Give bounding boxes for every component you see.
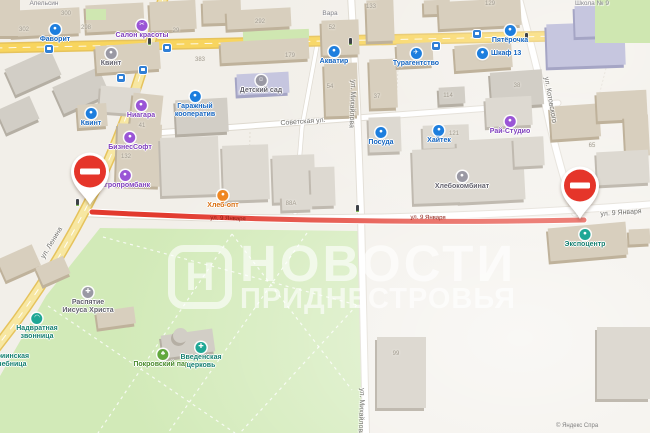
bank-icon: ● (120, 170, 131, 181)
building-number: 129 (485, 1, 495, 7)
building-number: 302 (19, 27, 29, 33)
bakery-icon: ● (217, 190, 228, 201)
poi-label: Салон красоты (116, 32, 169, 40)
poi-надвратная[interactable]: ◠Надвратнаязвонница (16, 313, 58, 340)
poi-label: Мариинскаялечебница (0, 353, 29, 368)
poi-фаворит[interactable]: ●Фаворит (40, 24, 70, 44)
expo-icon: ● (579, 229, 590, 240)
poi-label: Введенскаяцерковь (180, 354, 221, 369)
scissors-icon: ✂ (136, 20, 147, 31)
airplane-icon: ✈ (410, 48, 421, 59)
poi-турагентство[interactable]: ✈Турагентство (393, 48, 439, 68)
cart-icon: ● (433, 125, 444, 136)
poi-label: РаспятиеИисуса Христа (62, 299, 113, 314)
poi-label: Экспоцентр (565, 241, 606, 249)
building-number: 88А (286, 201, 297, 207)
poi-рай-студио[interactable]: ●Рай-Студио (490, 116, 531, 136)
building-number: 114 (443, 93, 453, 99)
building (160, 136, 220, 196)
map-canvas[interactable]: 302300298293834113229217952541333788А129… (0, 0, 650, 433)
poi-label: Шкаф 13 (491, 50, 521, 58)
poi-бизнессофт[interactable]: ●БизнесСофт (108, 132, 152, 152)
grocery-icon: ● (505, 25, 516, 36)
poi-шкаф 13[interactable]: ●Шкаф 13 (477, 48, 521, 59)
building-number: 298 (81, 25, 91, 31)
place-label: Апельсин (30, 0, 59, 7)
building-number: 179 (285, 53, 295, 59)
bus-stop-icon[interactable] (139, 66, 147, 74)
no-entry-sign-icon (557, 165, 603, 221)
traffic-light-icon (356, 205, 359, 212)
green-area (86, 9, 106, 20)
building (310, 167, 335, 207)
poi-label: Хлеб-опт (207, 202, 238, 210)
poi-label: Фаворит (40, 36, 70, 44)
poi-введенская[interactable]: ✚Введенскаяцерковь (180, 342, 221, 369)
bus-stop-icon[interactable] (473, 30, 481, 38)
store-icon: ● (50, 24, 61, 35)
poi-хайтек[interactable]: ●Хайтек (427, 125, 451, 145)
building (513, 136, 544, 167)
store-icon: ● (375, 127, 386, 138)
poi-label: Рай-Студио (490, 128, 531, 136)
traffic-light-icon (349, 38, 352, 45)
building-number: 300 (61, 11, 71, 17)
store-icon: ● (85, 108, 96, 119)
place-label: Вара (322, 10, 337, 17)
office-icon: ● (125, 132, 136, 143)
poi-квинт[interactable]: ●Квинт (101, 48, 122, 68)
factory-icon: ● (105, 48, 116, 59)
poi-label: Гаражныйкооператив (175, 103, 215, 118)
place-label: Школа № 9 (575, 0, 609, 7)
poi-label: Ниагара (127, 112, 155, 120)
building (597, 327, 650, 399)
church-cross-icon: ✚ (195, 342, 206, 353)
building (596, 150, 650, 186)
poi-мариинская[interactable]: Мариинскаялечебница (0, 352, 29, 368)
building-number: 38 (514, 83, 521, 89)
furniture-icon: ● (477, 48, 488, 59)
poi-label: Пятёрочка (492, 37, 528, 45)
building-number: 99 (393, 351, 400, 357)
building-number: 133 (366, 4, 376, 10)
poi-детский сад[interactable]: ☺Детский сад (240, 75, 282, 95)
no-entry-pin[interactable] (557, 165, 603, 226)
tree-icon: ♣ (158, 349, 169, 360)
poi-label: Надвратнаязвонница (16, 325, 58, 340)
poi-посуда[interactable]: ●Посуда (368, 127, 393, 147)
poi-распятие[interactable]: ✚РаспятиеИисуса Христа (62, 287, 113, 314)
building (0, 0, 20, 36)
building-number: 383 (195, 57, 205, 63)
street-label: ул. 9 Января (210, 215, 246, 222)
bus-stop-icon[interactable] (163, 44, 171, 52)
poi-label: Хайтек (427, 137, 451, 145)
building-number: 52 (329, 25, 336, 31)
building-number: 292 (255, 19, 265, 25)
map-attribution[interactable]: © Яндекс Спра (556, 423, 598, 429)
poi-label: Посуда (368, 139, 393, 147)
bell-icon: ◠ (32, 313, 43, 324)
building (377, 337, 426, 408)
smiley-icon: ☺ (255, 75, 266, 86)
poi-label: Акватир (320, 58, 349, 66)
poi-пятёрочка[interactable]: ●Пятёрочка (492, 25, 528, 45)
bus-stop-icon[interactable] (117, 74, 125, 82)
garage-icon: ● (189, 91, 200, 102)
poi-салон красоты[interactable]: ✂Салон красоты (116, 20, 169, 40)
building-number: 132 (121, 154, 131, 160)
office-icon: ● (328, 46, 339, 57)
poi-label: Хлебокомбинат (435, 183, 489, 191)
store-icon: ● (135, 100, 146, 111)
building (173, 328, 188, 343)
bus-stop-icon[interactable] (45, 45, 53, 53)
poi-label: Квинт (101, 60, 122, 68)
poi-label: Детский сад (240, 87, 282, 95)
street-label: ул. 9 Января (410, 215, 445, 222)
building (550, 103, 601, 139)
poi-акватир[interactable]: ●Акватир (320, 46, 349, 66)
no-entry-pin[interactable] (67, 151, 113, 212)
poi-экспоцентр[interactable]: ●Экспоцентр (565, 229, 606, 249)
poi-гаражный[interactable]: ●Гаражныйкооператив (175, 91, 215, 118)
poi-label: Квинт (81, 120, 102, 128)
building-number: 65 (589, 143, 596, 149)
cross-icon: ✚ (82, 287, 93, 298)
building (629, 228, 650, 244)
poi-label: БизнесСофт (108, 144, 152, 152)
building-number: 41 (139, 123, 146, 129)
building-number: 37 (374, 94, 381, 100)
factory-icon: ● (457, 171, 468, 182)
poi-ниагара[interactable]: ●Ниагара (127, 100, 155, 120)
building-number: 54 (327, 84, 334, 90)
poi-label: Турагентство (393, 60, 439, 68)
poi-хлеб-опт[interactable]: ●Хлеб-опт (207, 190, 238, 210)
poi-хлебокомбинат[interactable]: ●Хлебокомбинат (435, 171, 489, 191)
studio-icon: ● (504, 116, 515, 127)
poi-квинт[interactable]: ●Квинт (81, 108, 102, 128)
no-entry-sign-icon (67, 151, 113, 207)
building-number: 29 (173, 28, 180, 34)
